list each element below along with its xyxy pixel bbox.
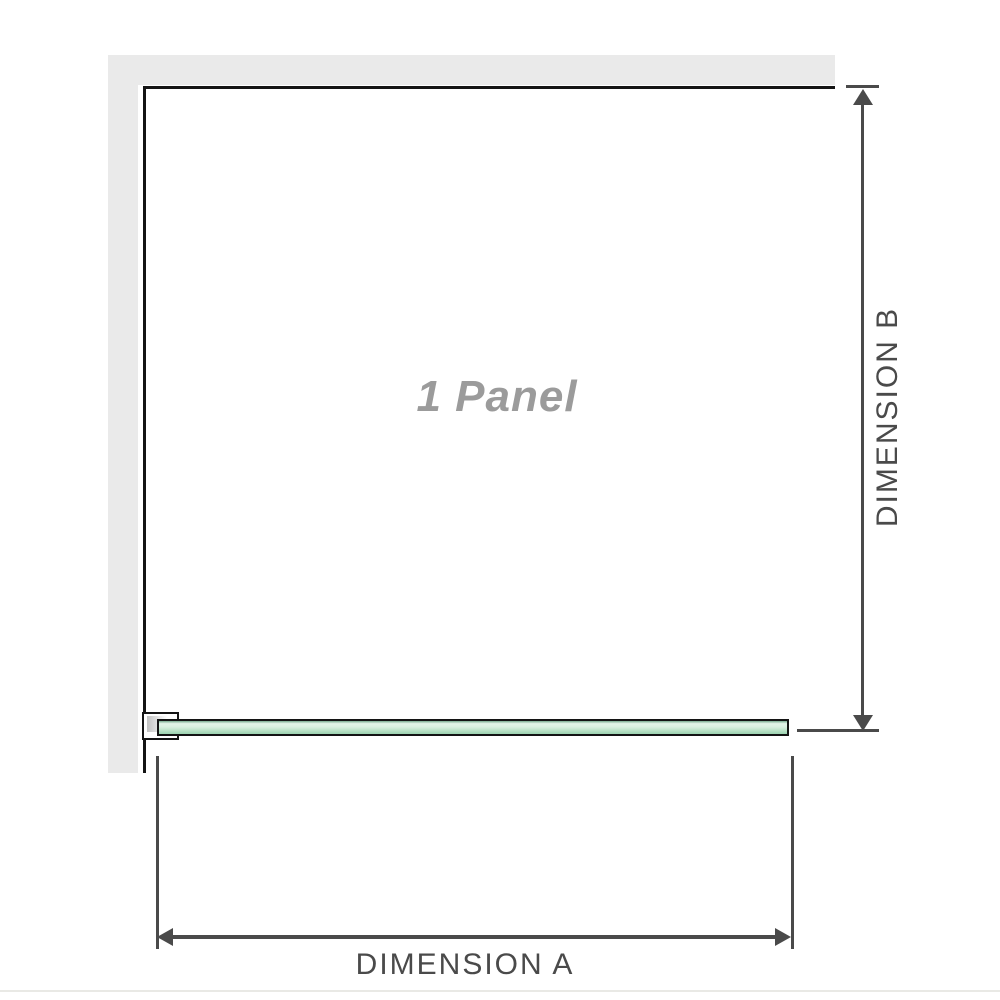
dimension-b-line — [861, 95, 864, 720]
dimension-a-extension-right — [791, 756, 794, 949]
page-bottom-divider — [0, 990, 1000, 992]
dimension-a-extension-left — [156, 756, 159, 949]
dimension-a-line — [170, 935, 780, 939]
dimension-b-tick-top — [846, 85, 879, 88]
dimension-a-label: DIMENSION A — [356, 948, 575, 982]
arrow-left-icon — [157, 928, 173, 946]
panel-dimension-diagram: 1 Panel DIMENSION B DIMENSION A — [0, 0, 1000, 1000]
wall-top — [108, 55, 835, 85]
glass-panel — [157, 719, 789, 736]
arrow-up-icon — [853, 89, 873, 105]
arrow-down-icon — [853, 715, 873, 731]
arrow-right-icon — [775, 928, 791, 946]
wall-left — [108, 55, 138, 773]
dimension-b-label: DIMENSION B — [871, 307, 905, 527]
enclosure-top-edge — [143, 86, 835, 89]
panel-count-label: 1 Panel — [416, 372, 577, 422]
enclosure-left-edge — [143, 86, 146, 773]
